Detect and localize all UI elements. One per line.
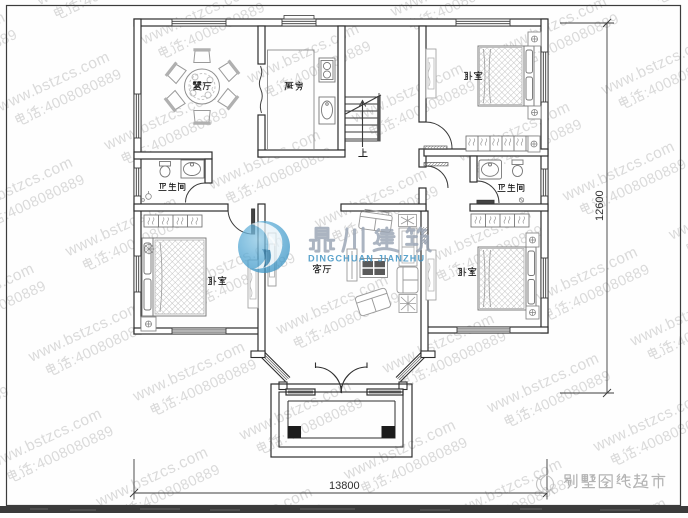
svg-text:DINGCHUAN JIANZHU: DINGCHUAN JIANZHU bbox=[308, 254, 425, 264]
svg-text:13800: 13800 bbox=[329, 480, 360, 492]
svg-text:12600: 12600 bbox=[594, 190, 606, 221]
